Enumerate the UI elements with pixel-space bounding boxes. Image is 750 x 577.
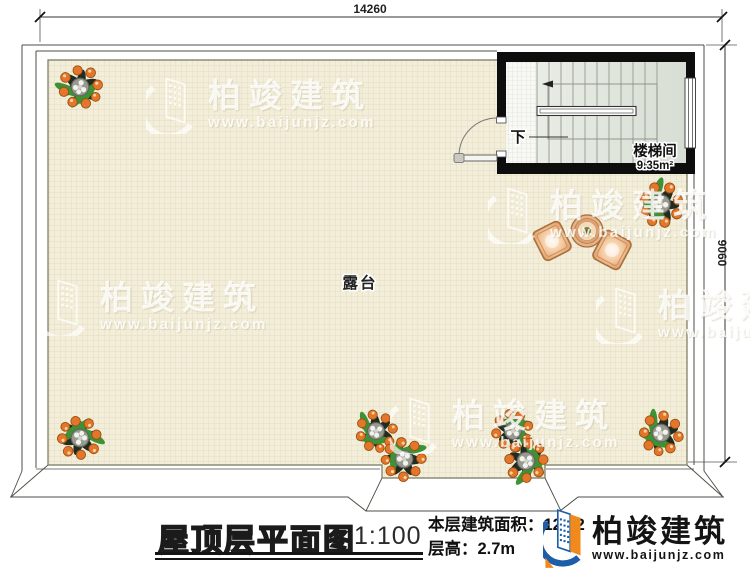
stair-landing — [506, 62, 537, 163]
door-handle — [454, 154, 464, 163]
floor-height-label: 层高： — [428, 540, 478, 558]
stair-handrail — [537, 107, 636, 116]
title-underline-thin — [155, 558, 423, 560]
terrace-label: 露台 — [342, 273, 377, 292]
floor-height-value: 2.7m — [478, 540, 516, 558]
stair-room-area: 9.35m² — [637, 160, 674, 172]
floor-area-label: 本层建筑面积： — [428, 516, 544, 534]
title-underline-thick — [155, 552, 423, 555]
stair-direction-label: 下 — [510, 129, 525, 146]
brand-logo-icon — [543, 506, 585, 570]
stair-room-label: 楼梯间 — [633, 142, 677, 160]
brand-logo: 柏竣建筑 www.baijunjz.com — [543, 506, 728, 570]
brand-url: www.baijunjz.com — [592, 548, 728, 562]
plan-scale: 1:100 — [354, 522, 422, 551]
floor-plan-page: { "dimensions": { "top_width": "14260", … — [0, 0, 750, 577]
top-dimension-label: 14260 — [353, 2, 387, 16]
stair-window — [685, 78, 696, 148]
brand-name: 柏竣建筑 — [592, 515, 728, 548]
floor-plan-drawing: 14260 9060 — [0, 0, 750, 515]
right-dimension-label: 9060 — [715, 240, 729, 267]
table-icon — [571, 215, 603, 247]
